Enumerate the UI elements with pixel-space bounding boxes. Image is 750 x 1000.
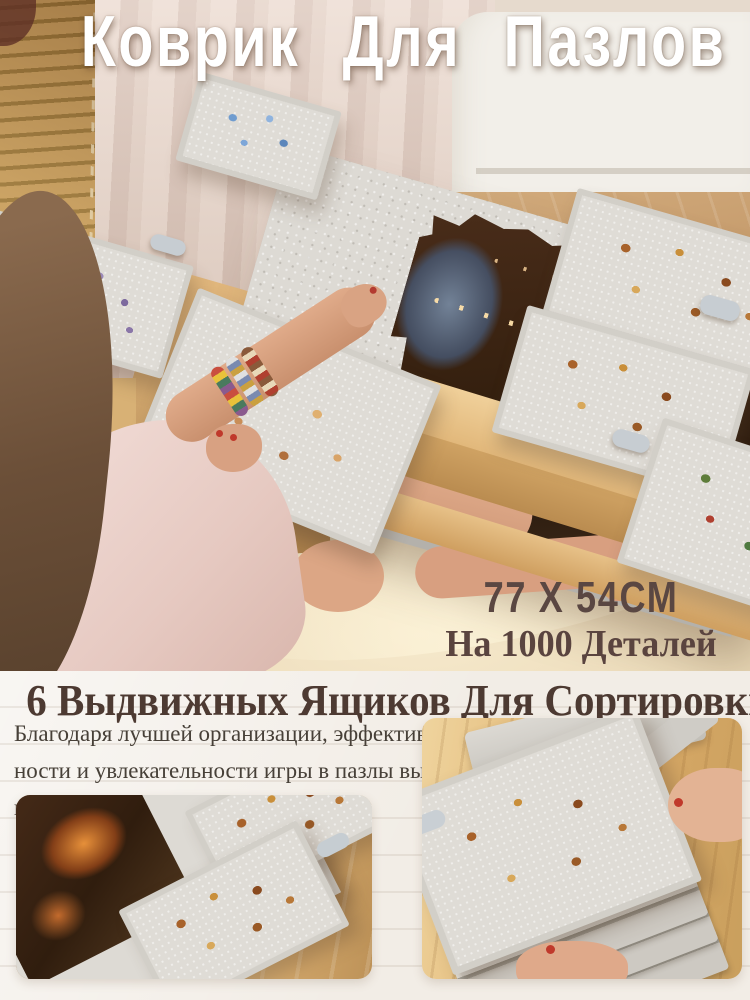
size-dimensions: 77 X 54СМ На 1000 Деталей [425, 576, 737, 663]
info-section: 6 Выдвижных Ящиков Для Сортировки Благод… [0, 671, 750, 1000]
hero-photo: Коврик Для Пазлов 77 X 54СМ На 1000 Дета… [0, 0, 750, 671]
photo-tray-stack [422, 718, 742, 979]
hand-bottom [516, 941, 628, 979]
product-card: Коврик Для Пазлов 77 X 54СМ На 1000 Дета… [0, 0, 750, 1000]
product-title-text: Коврик Для Пазлов [81, 6, 727, 78]
photo-open-drawers [16, 795, 372, 979]
piece-count-text: На 1000 Деталей [433, 625, 729, 663]
size-text: 77 X 54СМ [453, 576, 709, 620]
paragraph-line: Благодаря лучшей организации, эффектив [14, 715, 429, 752]
product-title: Коврик Для Пазлов [0, 6, 750, 78]
paragraph-line: ности и увлекательности игры в пазлы вы [14, 752, 429, 789]
